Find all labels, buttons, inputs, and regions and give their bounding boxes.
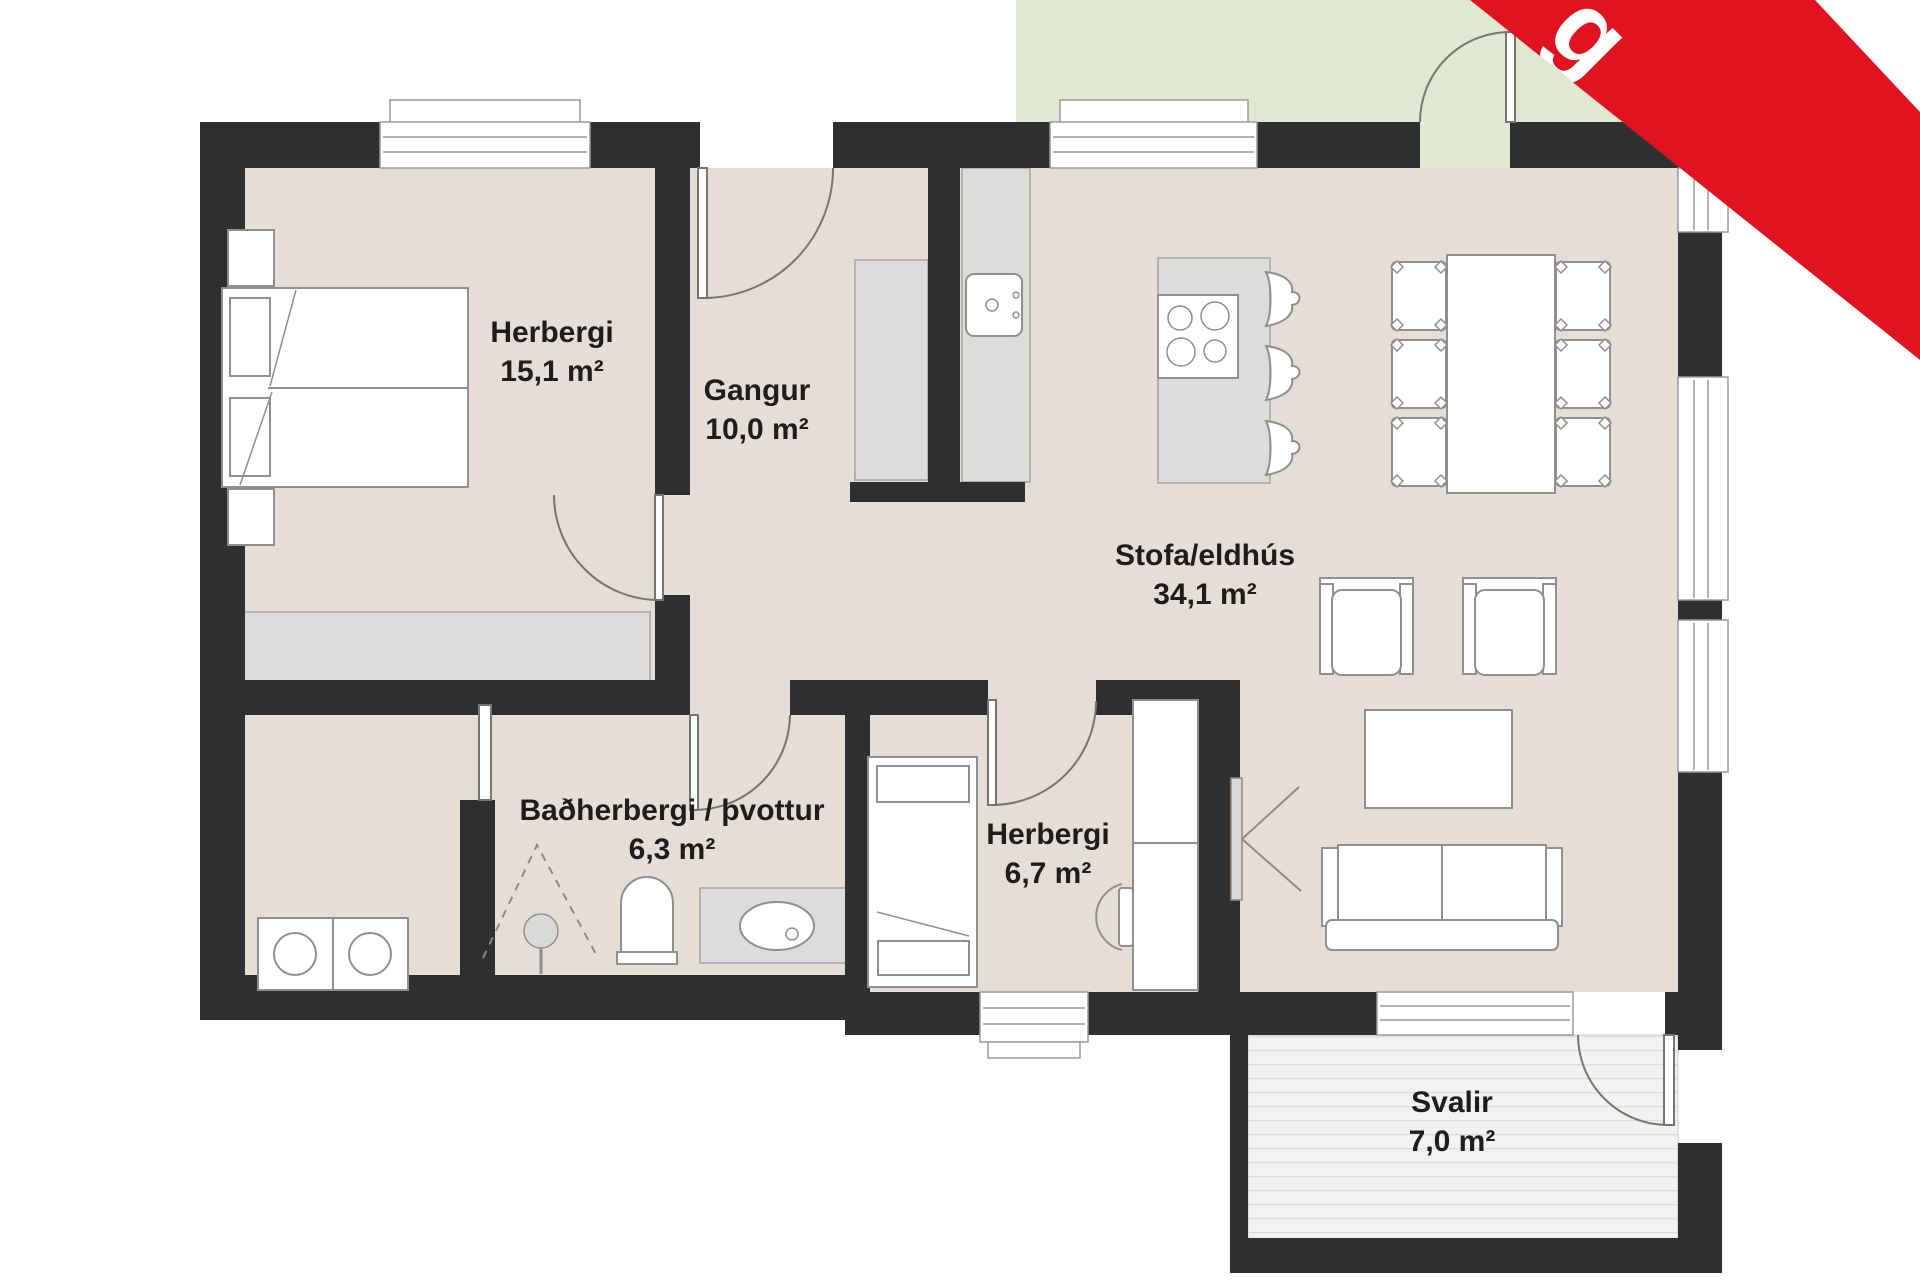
room-area: 7,0 m² <box>1409 1122 1496 1161</box>
armchair-icon <box>1463 578 1556 675</box>
room-name: Stofa/eldhús <box>1115 536 1295 575</box>
door-leaf <box>698 168 707 298</box>
toilet-icon <box>617 877 677 964</box>
room-name: Svalir <box>1409 1083 1496 1122</box>
window-icon <box>1050 122 1257 168</box>
nightstand-icon <box>228 489 274 545</box>
armchair-icon <box>1320 578 1413 675</box>
room-name: Herbergi <box>986 815 1109 854</box>
window-icon <box>980 992 1088 1042</box>
hall-closet-icon <box>855 260 928 480</box>
door-leaf <box>1506 32 1515 122</box>
room-area: 6,3 m² <box>519 830 824 869</box>
window-icon <box>1678 620 1728 772</box>
room-label-bathroom-laundry: Baðherbergi / þvottur 6,3 m² <box>519 791 824 869</box>
floor-plan-drawing <box>0 0 1920 1280</box>
window-sill <box>1060 100 1248 124</box>
kitchen-sink-icon <box>966 274 1022 336</box>
dining-chair-icon <box>1555 339 1611 409</box>
room-label-bedroom-1: Herbergi 15,1 m² <box>490 313 613 391</box>
dining-chair-icon <box>1555 417 1611 487</box>
floor-plan-page: Herbergi 15,1 m² Gangur 10,0 m² Stofa/el… <box>0 0 1920 1280</box>
window-icon <box>1377 992 1573 1035</box>
room-area: 34,1 m² <box>1115 575 1295 614</box>
room-label-living-kitchen: Stofa/eldhús 34,1 m² <box>1115 536 1295 614</box>
window-sill <box>988 1042 1080 1058</box>
room-name: Baðherbergi / þvottur <box>519 791 824 830</box>
dining-chair-icon <box>1391 261 1447 331</box>
coffee-table-icon <box>1365 710 1512 808</box>
sliding-door-icon <box>479 705 491 800</box>
window-icon <box>1678 168 1728 232</box>
double-bed-icon <box>222 288 468 487</box>
nightstand-icon <box>228 230 274 286</box>
dryer-icon <box>333 918 408 990</box>
window-sill <box>390 100 580 124</box>
room-label-bedroom-2: Herbergi 6,7 m² <box>986 815 1109 893</box>
washer-icon <box>258 918 333 990</box>
dining-chair-icon <box>1391 417 1447 487</box>
wardrobe-icon <box>215 612 650 682</box>
door-leaf <box>1664 1035 1674 1125</box>
stove-icon <box>1158 295 1238 378</box>
door-leaf <box>988 700 996 805</box>
vanity-sink-icon <box>740 902 814 950</box>
desk-icon <box>1133 700 1198 990</box>
dining-set <box>1391 255 1611 493</box>
room-area: 6,7 m² <box>986 854 1109 893</box>
room-label-hallway: Gangur 10,0 m² <box>704 371 811 449</box>
room-name: Herbergi <box>490 313 613 352</box>
door-leaf <box>655 495 663 600</box>
single-bed-icon <box>868 757 977 987</box>
room-name: Gangur <box>704 371 811 410</box>
dining-chair-icon <box>1555 261 1611 331</box>
sofa-icon <box>1322 845 1562 950</box>
room-area: 10,0 m² <box>704 410 811 449</box>
dining-table-icon <box>1447 255 1555 493</box>
window-icon <box>1678 377 1728 600</box>
room-area: 15,1 m² <box>490 352 613 391</box>
dining-chair-icon <box>1391 339 1447 409</box>
room-label-balcony: Svalir 7,0 m² <box>1409 1083 1496 1161</box>
window-icon <box>380 122 590 168</box>
